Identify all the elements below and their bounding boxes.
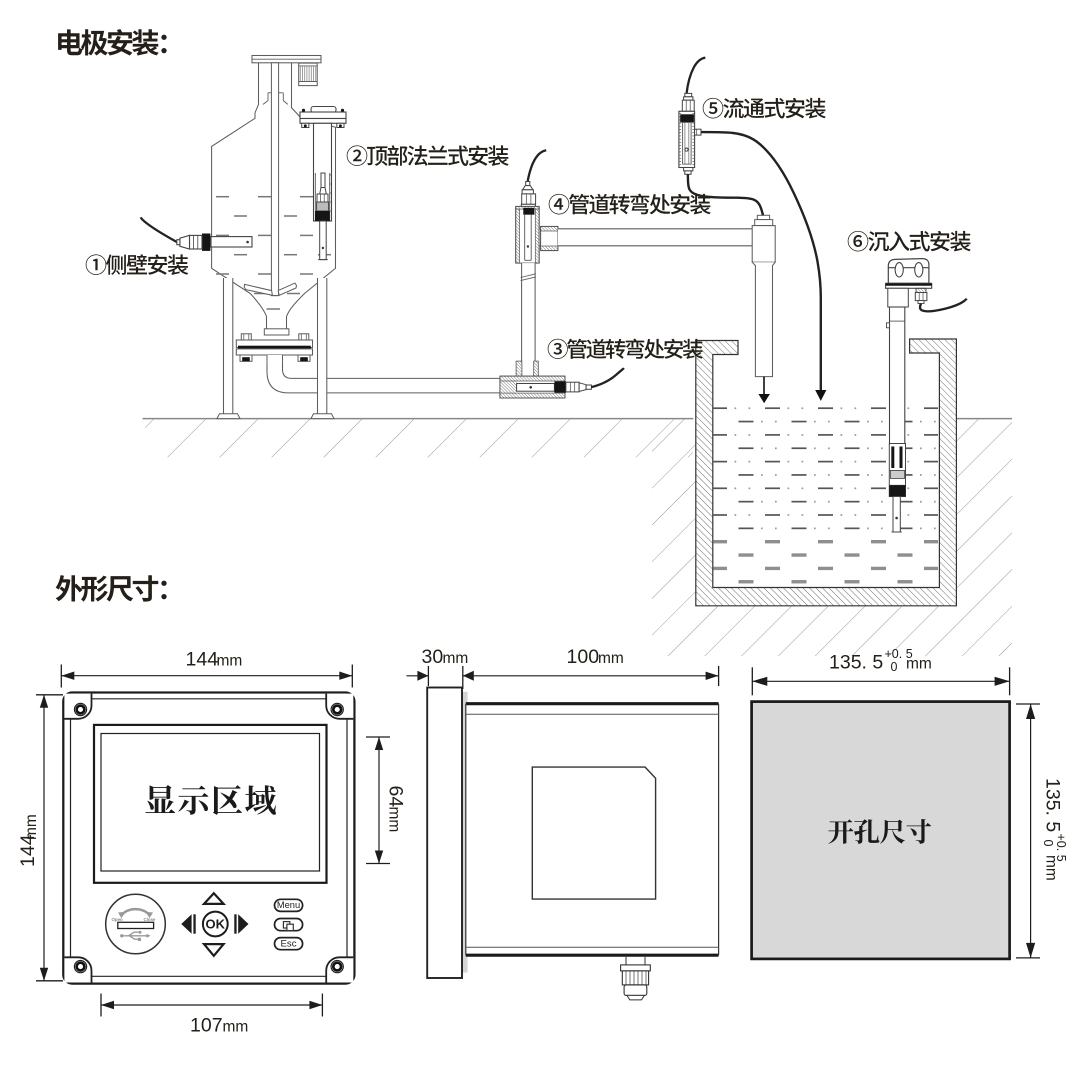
svg-text:144: 144 (186, 649, 219, 671)
svg-text:OK: OK (206, 917, 226, 932)
svg-text:mm: mm (386, 807, 403, 833)
svg-text:mm: mm (906, 656, 932, 673)
svg-text:135. 5: 135. 5 (1042, 778, 1064, 832)
svg-text:30: 30 (422, 646, 444, 668)
svg-text:Esc: Esc (281, 939, 297, 950)
svg-text:0: 0 (1041, 840, 1055, 847)
svg-text:64: 64 (385, 786, 407, 808)
svg-text:100: 100 (567, 646, 600, 668)
svg-text:mm: mm (23, 814, 40, 840)
svg-text:107: 107 (190, 1015, 223, 1037)
svg-text:mm: mm (598, 650, 624, 667)
svg-text:mm: mm (443, 650, 469, 667)
svg-text:mm: mm (223, 1019, 249, 1036)
svg-text:Menu: Menu (277, 900, 300, 910)
svg-text:135. 5: 135. 5 (829, 652, 883, 674)
svg-text:0: 0 (891, 660, 898, 674)
svg-text:Close: Close (144, 917, 157, 922)
svg-text:mm: mm (1043, 855, 1060, 881)
svg-text:Open: Open (112, 917, 124, 922)
svg-text:mm: mm (217, 653, 243, 670)
